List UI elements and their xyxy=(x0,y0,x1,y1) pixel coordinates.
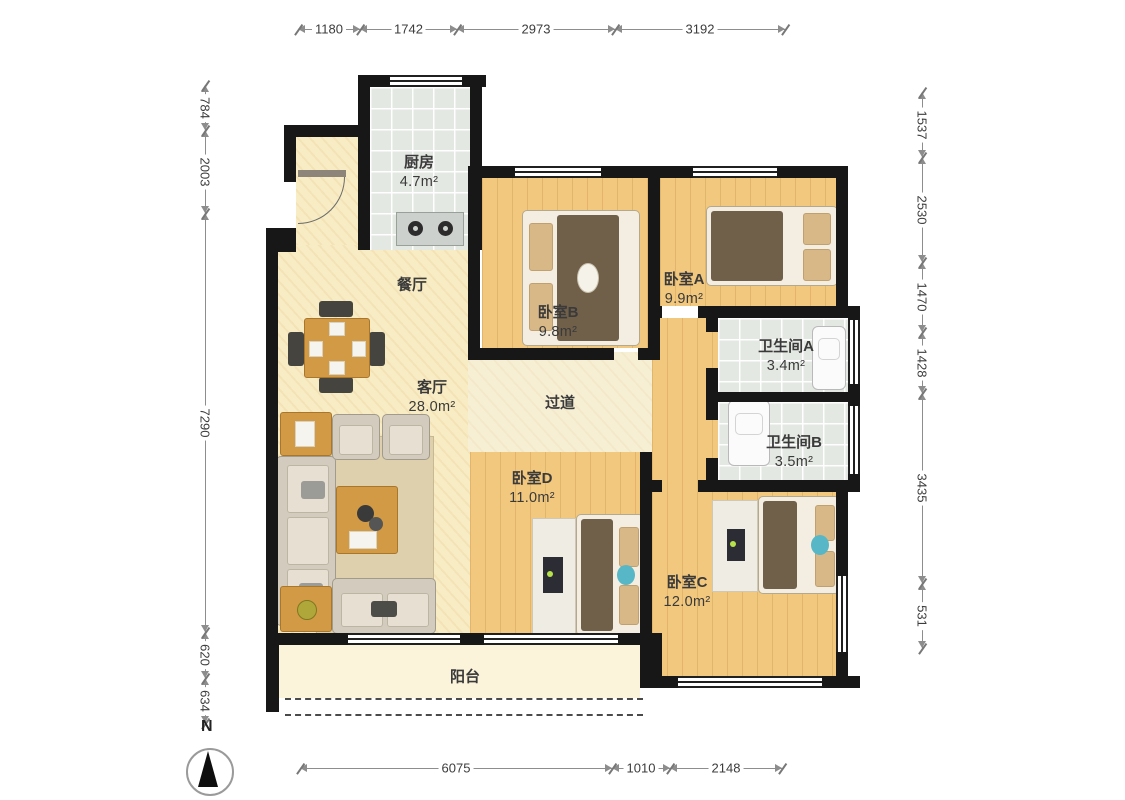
dimension-segment-right: 1428 xyxy=(915,332,929,393)
window xyxy=(848,320,860,384)
room-label-bedroom-c: 卧室C 12.0m² xyxy=(664,573,711,611)
bed-bedroom-a xyxy=(706,206,838,286)
dining-chair xyxy=(319,377,353,393)
wall xyxy=(468,166,480,360)
dimension-segment-top: 1180 xyxy=(298,22,360,36)
dimension-segment-right: 1537 xyxy=(915,92,929,157)
window xyxy=(515,166,601,178)
dimension-segment-top: 2973 xyxy=(457,22,615,36)
wall xyxy=(706,458,718,480)
room-label-bathroom-b: 卫生间B 3.5m² xyxy=(766,433,822,471)
bed-bedroom-c xyxy=(758,496,840,594)
dimension-value: 784 xyxy=(198,94,213,122)
wall xyxy=(836,166,848,318)
wall xyxy=(706,318,718,332)
dimension-value: 3192 xyxy=(683,22,718,37)
wall xyxy=(648,166,660,358)
dimension-segment-right: 531 xyxy=(915,583,929,648)
room-area: 4.7m² xyxy=(400,172,439,191)
dimension-segment-left: 7290 xyxy=(198,213,212,632)
floor-plan-canvas: 厨房 4.7m² 餐厅 客厅 28.0m² 过道 卧室B 9.8m² 卧室A 9… xyxy=(0,0,1125,800)
room-label-bedroom-d: 卧室D 11.0m² xyxy=(509,469,555,507)
armchair xyxy=(332,414,380,460)
room-name: 卧室B xyxy=(538,304,579,321)
dining-table xyxy=(304,318,370,378)
wall xyxy=(652,676,678,688)
room-label-hallway: 过道 xyxy=(545,393,575,413)
dimension-segment-right: 3435 xyxy=(915,393,929,583)
wall xyxy=(284,125,296,182)
dimension-segment-left: 784 xyxy=(198,85,212,130)
room-area: 9.8m² xyxy=(538,322,579,341)
coffee-table xyxy=(336,486,398,554)
room-label-bathroom-a: 卫生间A 3.4m² xyxy=(758,337,814,375)
wall xyxy=(468,348,614,360)
room-name: 阳台 xyxy=(450,668,480,685)
dimension-value: 1180 xyxy=(312,22,346,37)
dimension-segment-top: 1742 xyxy=(360,22,457,36)
dimension-segment-bottom: 2148 xyxy=(670,761,782,775)
room-name: 卧室D xyxy=(512,470,553,487)
dimension-segment-right: 2530 xyxy=(915,157,929,262)
window xyxy=(678,676,822,688)
room-label-bedroom-b: 卧室B 9.8m² xyxy=(538,303,579,341)
dining-chair xyxy=(319,301,353,317)
dining-chair xyxy=(369,332,385,366)
room-name: 卧室A xyxy=(664,271,705,288)
stove xyxy=(396,212,464,246)
toilet-bathroom-a xyxy=(812,326,846,390)
wall xyxy=(698,306,860,318)
window xyxy=(836,576,848,652)
window xyxy=(484,633,618,645)
dimension-segment-left: 634 xyxy=(198,678,212,723)
dimension-value: 7290 xyxy=(198,405,213,440)
dimension-value: 1742 xyxy=(391,22,426,37)
dimension-value: 3435 xyxy=(915,471,930,506)
room-label-bedroom-a: 卧室A 9.9m² xyxy=(664,270,705,308)
room-name: 过道 xyxy=(545,394,575,411)
balcony-railing xyxy=(285,698,643,716)
sofa-small xyxy=(332,578,436,634)
window xyxy=(848,406,860,474)
wall xyxy=(266,633,279,712)
room-label-kitchen: 厨房 4.7m² xyxy=(400,153,439,191)
wall xyxy=(266,240,278,645)
wall xyxy=(648,306,662,318)
side-table xyxy=(280,586,332,632)
dimension-value: 634 xyxy=(198,687,213,715)
tv-stand-bedroom-c xyxy=(712,500,758,592)
wall xyxy=(460,633,484,645)
window xyxy=(390,75,462,87)
compass-needle-icon xyxy=(198,751,218,787)
dimension-value: 620 xyxy=(198,641,213,669)
window xyxy=(348,633,460,645)
wall xyxy=(822,676,860,688)
bed-bedroom-d xyxy=(576,514,644,636)
dimension-segment-bottom: 6075 xyxy=(300,761,612,775)
side-table xyxy=(280,412,332,456)
room-area: 28.0m² xyxy=(409,397,456,416)
room-name: 卫生间A xyxy=(758,338,814,355)
room-name: 餐厅 xyxy=(397,276,427,293)
wall xyxy=(278,633,348,645)
dimension-segment-left: 620 xyxy=(198,632,212,678)
compass: N xyxy=(178,718,238,796)
room-name: 卫生间B xyxy=(766,434,822,451)
dimension-value: 1470 xyxy=(915,280,930,315)
dimension-segment-top: 3192 xyxy=(615,22,785,36)
room-name: 客厅 xyxy=(417,379,447,396)
dimension-value: 1537 xyxy=(915,107,930,142)
dimension-value: 2530 xyxy=(915,192,930,227)
dimension-value: 531 xyxy=(915,602,930,630)
room-label-dining: 餐厅 xyxy=(397,275,427,295)
room-area: 9.9m² xyxy=(664,289,705,308)
armchair xyxy=(382,414,430,460)
wall xyxy=(706,392,848,402)
dimension-segment-right: 1470 xyxy=(915,262,929,332)
room-area: 12.0m² xyxy=(664,592,711,611)
dimension-value: 6075 xyxy=(439,761,474,776)
dining-chair xyxy=(288,332,304,366)
washbasin-bathroom-b xyxy=(728,400,770,466)
wall xyxy=(638,348,660,360)
room-area: 11.0m² xyxy=(509,488,555,507)
tv-stand-bedroom-d xyxy=(532,518,576,634)
room-area: 3.5m² xyxy=(766,452,822,471)
dimension-segment-left: 2003 xyxy=(198,130,212,213)
wall xyxy=(358,87,370,250)
room-label-balcony: 阳台 xyxy=(450,667,480,687)
wall xyxy=(640,452,652,645)
dimension-value: 1428 xyxy=(915,345,930,380)
room-name: 厨房 xyxy=(404,154,434,171)
dimension-value: 2973 xyxy=(519,22,554,37)
compass-north-label: N xyxy=(201,718,213,736)
room-label-living: 客厅 28.0m² xyxy=(409,378,456,416)
dimension-value: 2148 xyxy=(709,761,744,776)
window xyxy=(693,166,777,178)
room-area: 3.4m² xyxy=(758,356,814,375)
dimension-value: 2003 xyxy=(198,154,213,189)
room-name: 卧室C xyxy=(667,574,708,591)
dimension-value: 1010 xyxy=(624,761,659,776)
entry-door xyxy=(298,170,346,177)
dimension-segment-bottom: 1010 xyxy=(612,761,670,775)
